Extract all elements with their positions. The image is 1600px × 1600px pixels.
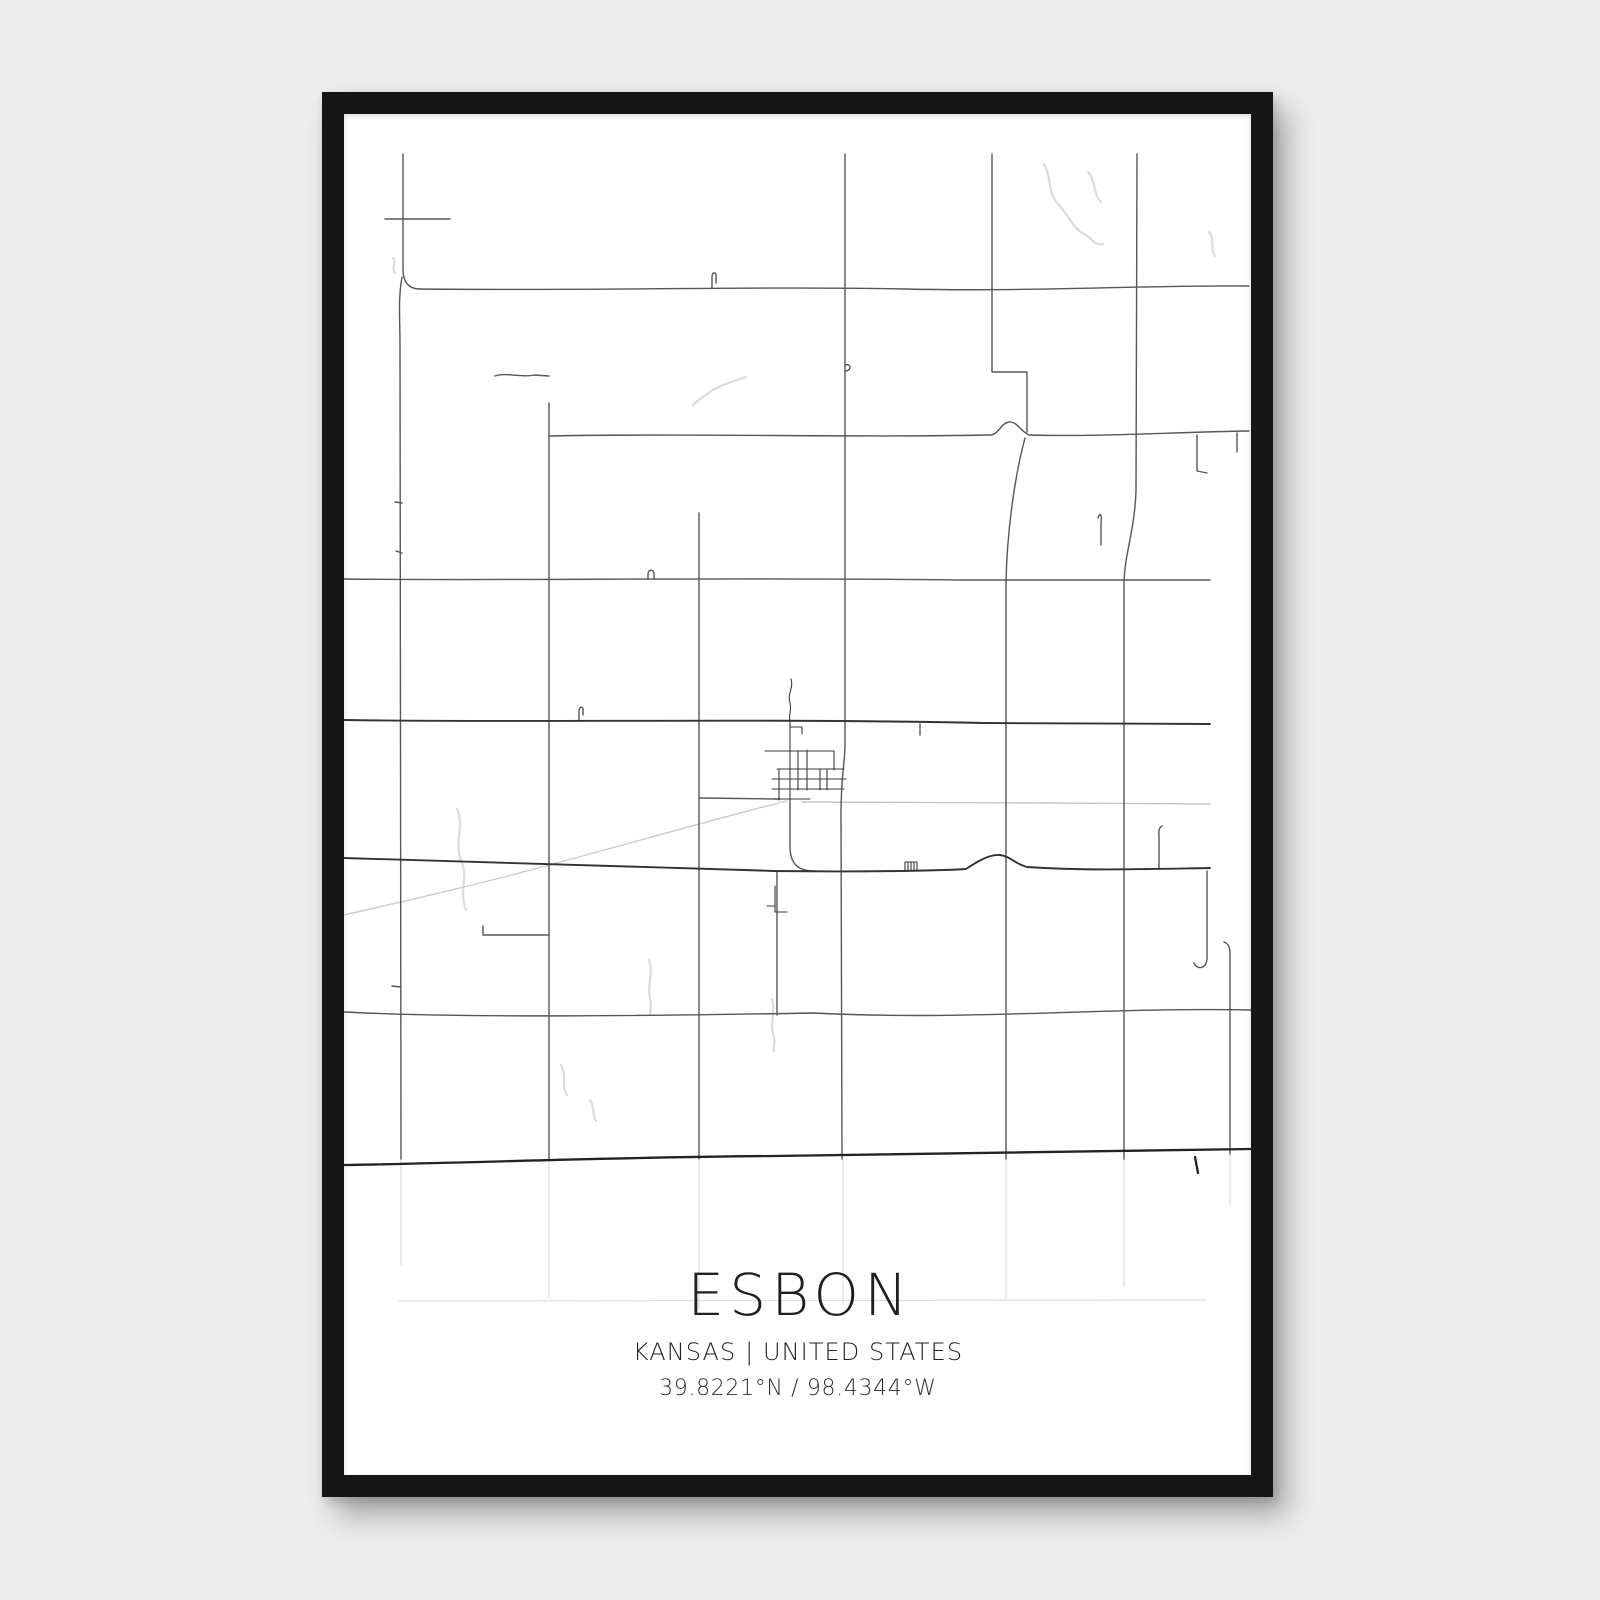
map-path-road-dark	[1195, 1157, 1198, 1173]
map-path-road	[400, 277, 403, 1159]
map-path-road	[396, 551, 402, 553]
poster-print: ESBON KANSAS | UNITED STATES 39.8221°N /…	[344, 114, 1251, 1475]
map-path-water	[590, 1100, 596, 1121]
map-path-water	[772, 999, 775, 1051]
map-path-road	[344, 1010, 1251, 1016]
wall-scene: ESBON KANSAS | UNITED STATES 39.8221°N /…	[0, 0, 1600, 1600]
map-path-water	[393, 258, 395, 273]
map-path-road	[579, 707, 583, 720]
map-path-road	[1194, 871, 1207, 968]
map-path-road	[648, 570, 654, 579]
poster-frame: ESBON KANSAS | UNITED STATES 39.8221°N /…	[322, 92, 1273, 1497]
map-path-road	[549, 422, 1249, 436]
region-subtitle: KANSAS | UNITED STATES	[344, 1339, 1251, 1365]
map-path-water	[1088, 172, 1101, 202]
map-path-water	[457, 809, 466, 910]
map-path-water	[1209, 232, 1215, 256]
map-path-road	[1224, 942, 1230, 1154]
map-path-road	[1197, 435, 1207, 473]
map-path-road	[1098, 515, 1101, 545]
map-path-road	[700, 798, 780, 799]
map-path-road	[395, 502, 402, 503]
poster-caption: ESBON KANSAS | UNITED STATES 39.8221°N /…	[344, 1264, 1251, 1401]
map-path-water	[649, 960, 651, 1015]
map-path-water	[1044, 164, 1103, 244]
map-path-road2	[344, 720, 1210, 724]
map-path-road	[1159, 826, 1162, 869]
map-path-road	[392, 986, 401, 987]
map-path-road	[790, 805, 814, 871]
map-path-road	[1124, 154, 1137, 1159]
map-path-street	[790, 727, 802, 734]
map-path-road	[403, 154, 420, 289]
map-path-water	[693, 377, 746, 405]
map-path-road2	[344, 855, 1210, 871]
coordinates-label: 39.8221°N / 98.4344°W	[344, 1377, 1251, 1401]
map-path-road	[344, 579, 1210, 580]
map-path-street	[905, 862, 917, 870]
map-path-road	[420, 286, 1249, 290]
map-path-road	[845, 365, 850, 371]
map-path-road	[1006, 438, 1025, 1159]
map-path-water	[561, 1065, 567, 1095]
map-path-road	[712, 273, 716, 288]
map-path-road	[841, 154, 845, 1159]
map-path-road	[495, 375, 549, 376]
city-title: ESBON	[344, 1264, 1251, 1326]
map-path-street	[789, 679, 792, 721]
map-path-rail	[344, 801, 787, 915]
map-path-road-dark	[344, 1149, 1251, 1165]
map-path-road	[992, 154, 1027, 432]
map-path-road	[483, 926, 549, 935]
